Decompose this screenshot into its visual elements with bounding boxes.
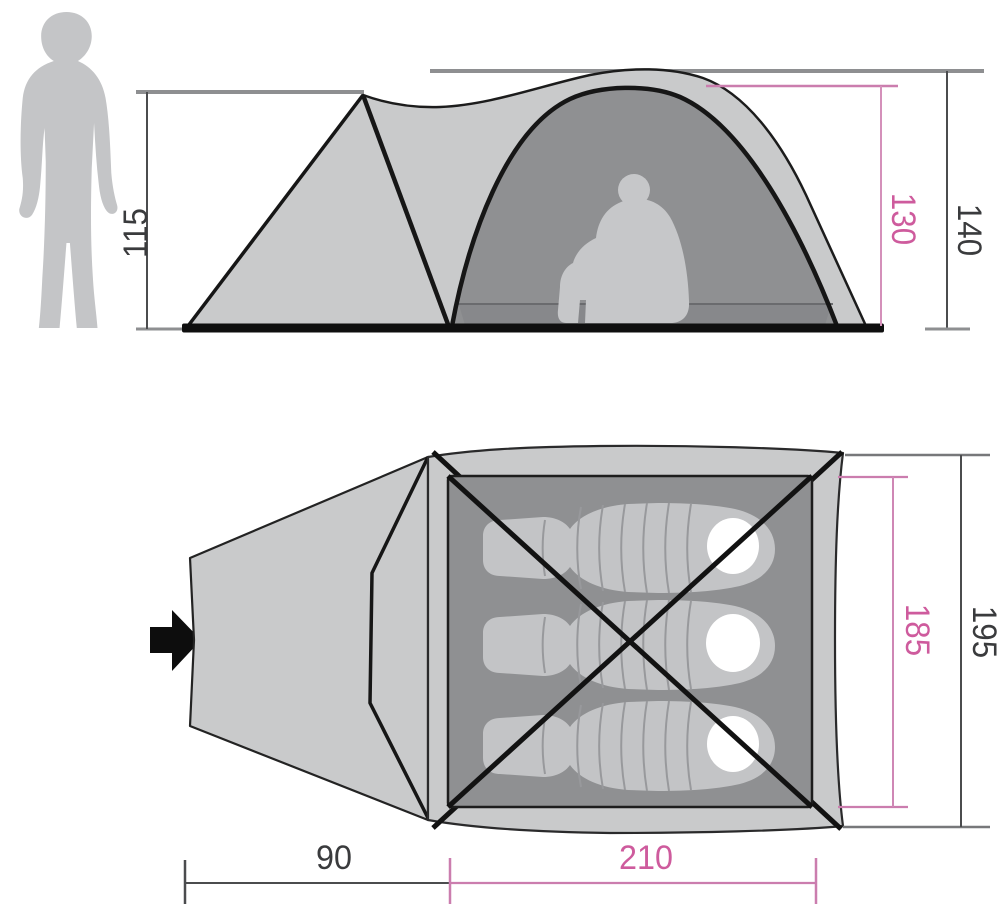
dim-label-inner-peak-height: 130 [886, 193, 920, 245]
dim-label-inner-length: 210 [619, 841, 673, 875]
dim-label-outer-peak-height: 140 [952, 204, 986, 256]
dim-label-outer-width: 195 [967, 606, 1000, 658]
diagram-drawing [0, 0, 1000, 904]
pillow [706, 614, 760, 672]
standing-person-silhouette [19, 12, 117, 328]
dim-label-vestibule-height: 115 [119, 208, 153, 258]
ground-line [182, 324, 884, 333]
pillow [707, 716, 759, 772]
tent-dimension-diagram: 115 130 140 185 195 90 210 [0, 0, 1000, 904]
side-view [19, 12, 984, 333]
dim-label-inner-width: 185 [900, 604, 934, 656]
dim-label-vestibule-depth: 90 [316, 841, 352, 875]
top-view [150, 446, 990, 904]
vestibule-plan [190, 457, 428, 820]
